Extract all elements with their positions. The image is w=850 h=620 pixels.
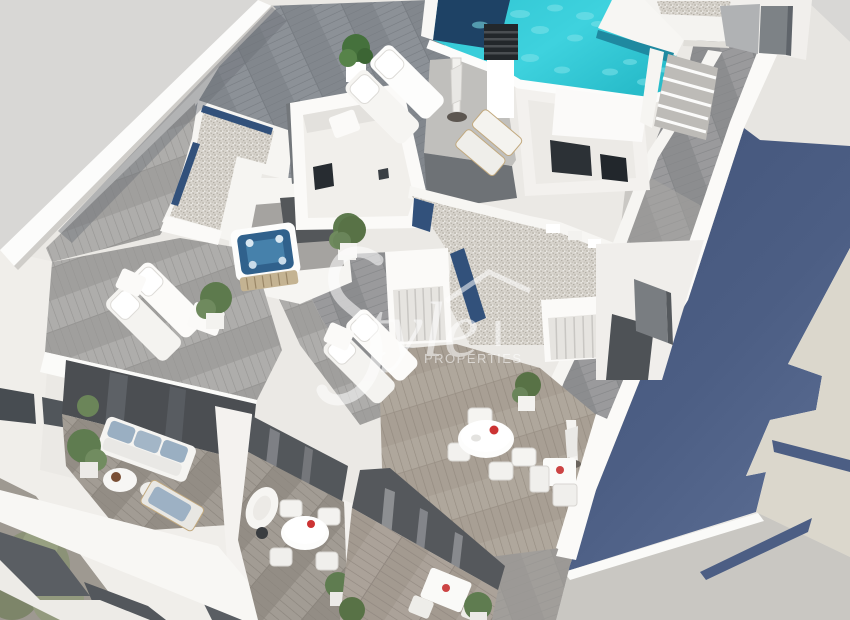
- svg-text:PROPERTIES: PROPERTIES: [424, 351, 523, 366]
